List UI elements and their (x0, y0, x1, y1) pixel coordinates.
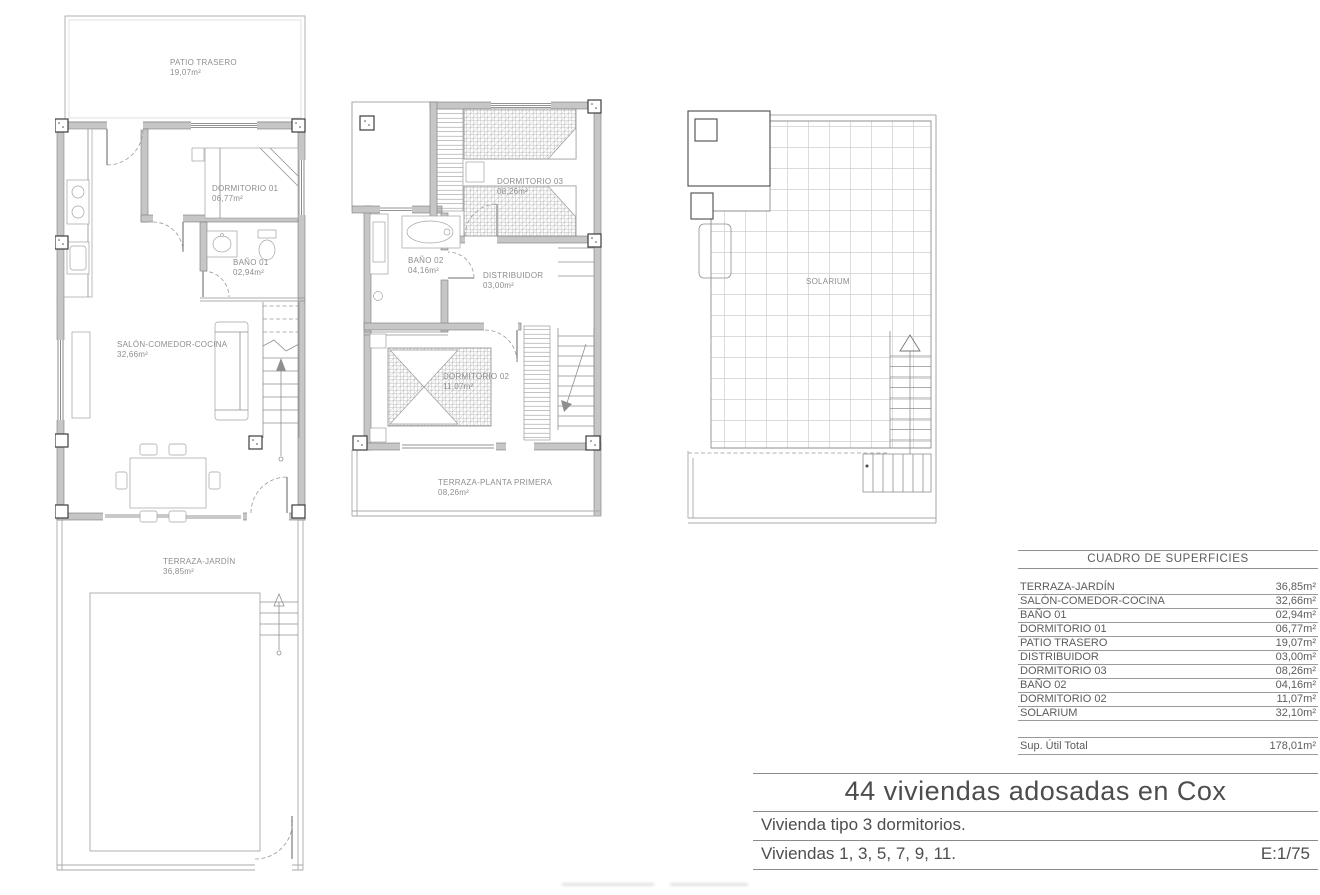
title-block-footer: Viviendas 1, 3, 5, 7, 9, 11. E:1/75 (753, 841, 1318, 870)
row-label: BAÑO 02 (1020, 679, 1066, 692)
row-value: 32,10m² (1276, 707, 1316, 720)
room-area: 06,77m² (212, 194, 278, 204)
table-row: DORMITORIO 02 11,07m² (1018, 693, 1318, 707)
room-name: BAÑO 01 (233, 258, 269, 268)
table-row: SOLARIUM 32,10m² (1018, 707, 1318, 721)
total-label: Sup. Útil Total (1020, 739, 1088, 753)
ground-floor-plan (55, 10, 315, 880)
total-value: 178,01m² (1270, 739, 1316, 753)
plan-type-subtitle: Vivienda tipo 3 dormitorios. (753, 812, 1318, 841)
table-row: BAÑO 02 04,16m² (1018, 679, 1318, 693)
row-value: 08,26m² (1276, 665, 1316, 678)
row-label: DORMITORIO 03 (1020, 665, 1107, 678)
surfaces-table: CUADRO DE SUPERFICIES TERRAZA-JARDÍN 36,… (1018, 550, 1318, 755)
row-value: 03,00m² (1276, 651, 1316, 664)
room-name: TERRAZA-PLANTA PRIMERA (438, 478, 552, 488)
row-value: 19,07m² (1276, 637, 1316, 650)
room-area: 08,26m² (497, 187, 563, 197)
roof-solarium-plan (683, 106, 945, 534)
table-row: DORMITORIO 01 06,77m² (1018, 623, 1318, 637)
room-area: 19,07m² (170, 68, 237, 78)
first-floor-plan (346, 98, 608, 526)
room-area: 02,94m² (233, 268, 269, 278)
row-value: 06,77m² (1276, 623, 1316, 636)
row-value: 11,07m² (1276, 693, 1316, 706)
room-area: 32,66m² (117, 350, 227, 360)
room-area: 36,85m² (163, 567, 235, 577)
room-name: TERRAZA-JARDÍN (163, 557, 235, 567)
surfaces-total-row: Sup. Útil Total 178,01m² (1018, 737, 1318, 755)
row-label: SALÓN-COMEDOR-COCINA (1020, 595, 1165, 608)
row-label: SOLARIUM (1020, 707, 1077, 720)
room-name: DORMITORIO 01 (212, 184, 278, 194)
surfaces-table-title: CUADRO DE SUPERFICIES (1018, 550, 1318, 569)
project-title: 44 viviendas adosadas en Cox (753, 773, 1318, 812)
row-label: DORMITORIO 02 (1020, 693, 1107, 706)
table-row: TERRAZA-JARDÍN 36,85m² (1018, 581, 1318, 595)
row-value: 04,16m² (1276, 679, 1316, 692)
room-label-terraza-planta-primera: TERRAZA-PLANTA PRIMERA 08,26m² (438, 478, 552, 497)
room-label-patio-trasero: PATIO TRASERO 19,07m² (170, 58, 237, 77)
room-label-dormitorio-02: DORMITORIO 02 11,07m² (443, 372, 509, 391)
row-label: TERRAZA-JARDÍN (1020, 581, 1115, 594)
title-block: 44 viviendas adosadas en Cox Vivienda ti… (753, 773, 1318, 870)
row-label: BAÑO 01 (1020, 609, 1066, 622)
room-name: BAÑO 02 (408, 256, 444, 266)
room-label-solarium: SOLARIUM (806, 277, 850, 287)
room-area: 03,00m² (483, 281, 543, 291)
illegible-watermark (562, 879, 782, 889)
table-row: DORMITORIO 03 08,26m² (1018, 665, 1318, 679)
room-label-terraza-jardin: TERRAZA-JARDÍN 36,85m² (163, 557, 235, 576)
row-label: DORMITORIO 01 (1020, 623, 1107, 636)
room-label-distribuidor: DISTRIBUIDOR 03,00m² (483, 271, 543, 290)
room-name: SOLARIUM (806, 277, 850, 287)
surfaces-table-rows: TERRAZA-JARDÍN 36,85m² SALÓN-COMEDOR-COC… (1018, 581, 1318, 721)
table-row: PATIO TRASERO 19,07m² (1018, 637, 1318, 651)
table-row: BAÑO 01 02,94m² (1018, 609, 1318, 623)
room-label-salon-comedor-cocina: SALÓN-COMEDOR-COCINA 32,66m² (117, 340, 227, 359)
unit-list: Viviendas 1, 3, 5, 7, 9, 11. (761, 844, 956, 864)
room-label-bano-01: BAÑO 01 02,94m² (233, 258, 269, 277)
room-area: 08,26m² (438, 488, 552, 498)
room-area: 04,16m² (408, 266, 444, 276)
room-name: DORMITORIO 02 (443, 372, 509, 382)
row-label: DISTRIBUIDOR (1020, 651, 1099, 664)
room-area: 11,07m² (443, 382, 509, 392)
roof-drawing (683, 106, 945, 534)
ground-floor-drawing (55, 10, 315, 880)
room-name: DISTRIBUIDOR (483, 271, 543, 281)
room-label-dormitorio-01: DORMITORIO 01 06,77m² (212, 184, 278, 203)
blueprint-canvas: PATIO TRASERO 19,07m² DORMITORIO 01 06,7… (0, 0, 1320, 895)
row-value: 02,94m² (1276, 609, 1316, 622)
row-value: 32,66m² (1276, 595, 1316, 608)
room-name: SALÓN-COMEDOR-COCINA (117, 340, 227, 350)
first-floor-drawing (346, 98, 608, 526)
room-name: DORMITORIO 03 (497, 177, 563, 187)
room-label-bano-02: BAÑO 02 04,16m² (408, 256, 444, 275)
row-value: 36,85m² (1276, 581, 1316, 594)
room-label-dormitorio-03: DORMITORIO 03 08,26m² (497, 177, 563, 196)
table-row: DISTRIBUIDOR 03,00m² (1018, 651, 1318, 665)
table-row: SALÓN-COMEDOR-COCINA 32,66m² (1018, 595, 1318, 609)
row-label: PATIO TRASERO (1020, 637, 1107, 650)
room-name: PATIO TRASERO (170, 58, 237, 68)
scale-label: E:1/75 (1261, 844, 1310, 864)
